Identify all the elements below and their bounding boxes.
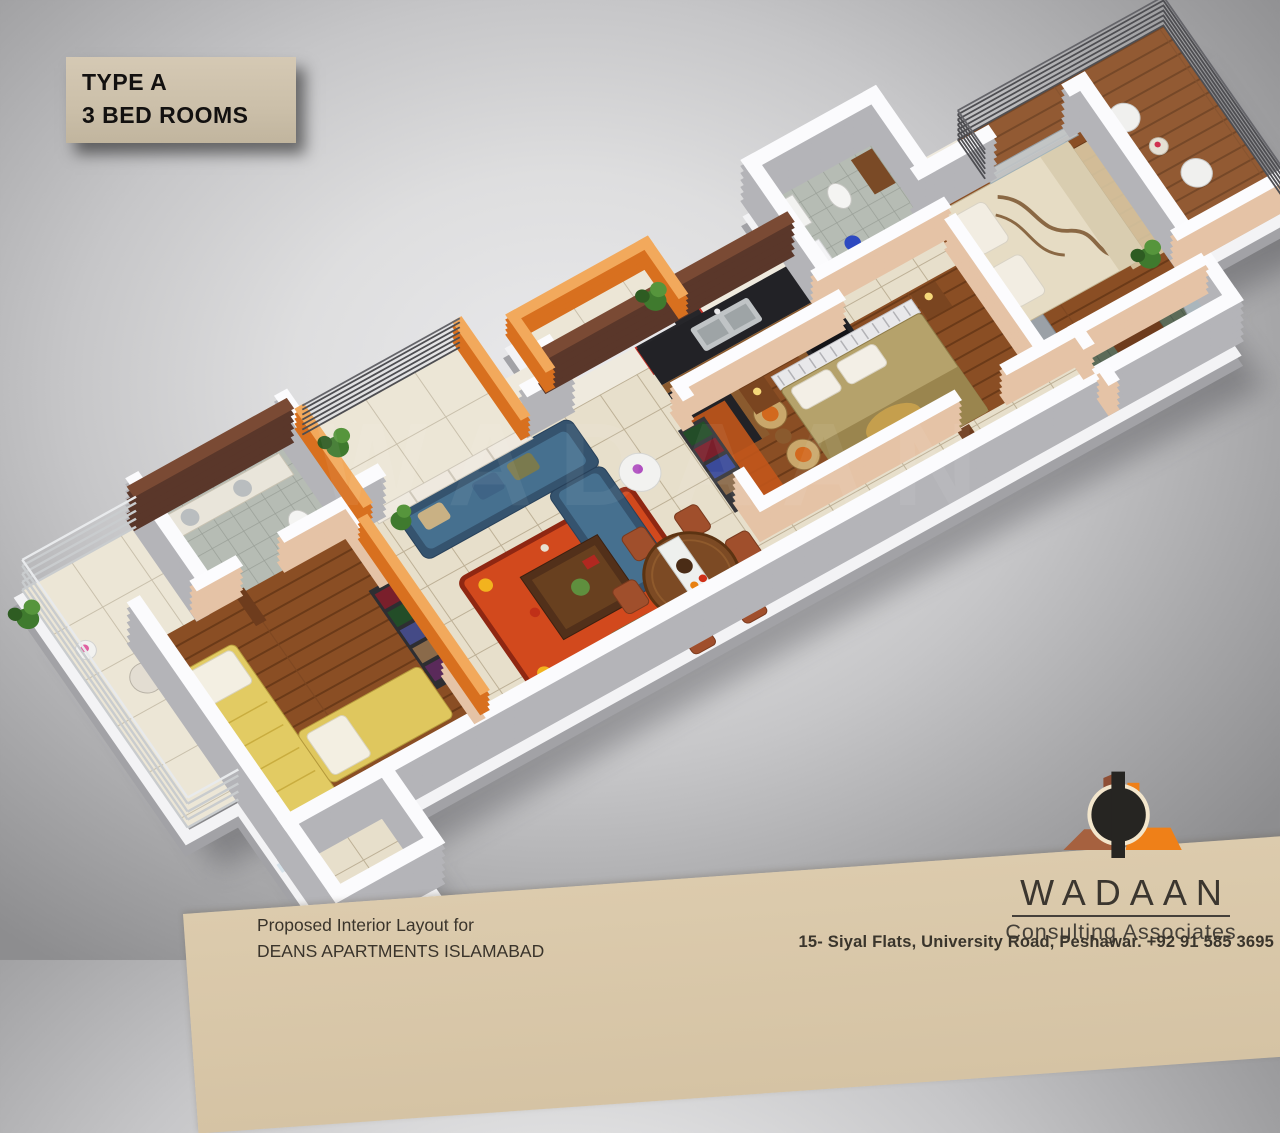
brand-name: WADAAN <box>966 874 1276 912</box>
watermark: WADAAN <box>317 399 1004 531</box>
caption-line2: DEANS APARTMENTS ISLAMABAD <box>257 938 544 964</box>
type-label: TYPE A 3 BED ROOMS <box>66 57 296 143</box>
brand-footer: WADAAN Consulting Associates <box>966 770 1276 945</box>
type-label-line2: 3 BED ROOMS <box>82 99 278 132</box>
caption: Proposed Interior Layout for DEANS APART… <box>257 912 544 965</box>
brand-rule <box>1012 915 1230 917</box>
caption-line1: Proposed Interior Layout for <box>257 912 544 938</box>
type-label-line1: TYPE A <box>82 66 278 99</box>
poster: { "title": { "line1": "TYPE A", "line2":… <box>0 0 1280 960</box>
logo-black-bar <box>1111 772 1125 858</box>
wadaan-logo-mark <box>1057 770 1185 874</box>
brand-address: 15- Siyal Flats, University Road, Peshaw… <box>799 933 1274 952</box>
